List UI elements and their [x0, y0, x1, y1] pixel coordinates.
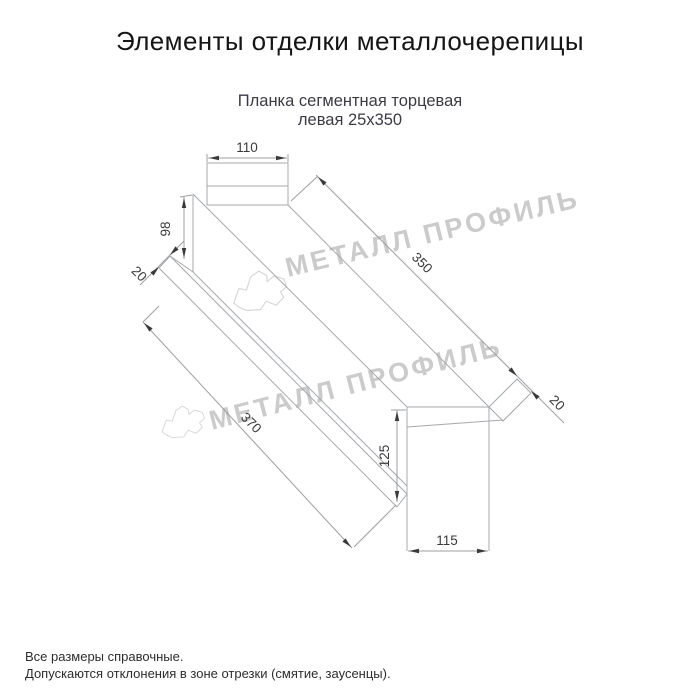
dim-label-20-right: 20: [547, 392, 568, 413]
dimension-370: 370: [143, 306, 396, 548]
dimension-20-left: 20: [129, 241, 184, 285]
dimension-115: 115: [408, 533, 488, 553]
watermark-upper: МЕТАЛЛ ПРОФИЛЬ: [228, 183, 582, 314]
footer-notes: Все размеры справочные. Допускаются откл…: [25, 648, 391, 682]
brand-cloud-icon: [228, 266, 290, 315]
watermark-lower: МЕТАЛЛ ПРОФИЛЬ: [158, 331, 505, 441]
dim-label-98: 98: [158, 221, 173, 236]
footer-note-2: Допускаются отклонения в зоне отрезки (с…: [25, 665, 391, 682]
dimension-20-right: 20: [531, 391, 568, 413]
dim-label-115: 115: [436, 533, 458, 548]
dimension-110: 110: [207, 140, 288, 162]
technical-drawing: МЕТАЛЛ ПРОФИЛЬ МЕТАЛЛ ПРОФИЛЬ 1: [0, 0, 700, 700]
dim-label-125: 125: [377, 445, 392, 468]
dim-label-20-left: 20: [129, 263, 150, 284]
dim-label-110: 110: [236, 140, 258, 155]
brand-cloud-icon: [158, 402, 207, 441]
footer-note-1: Все размеры справочные.: [25, 648, 391, 665]
drawing-page: { "title": "Элементы отделки металлочере…: [0, 0, 700, 700]
